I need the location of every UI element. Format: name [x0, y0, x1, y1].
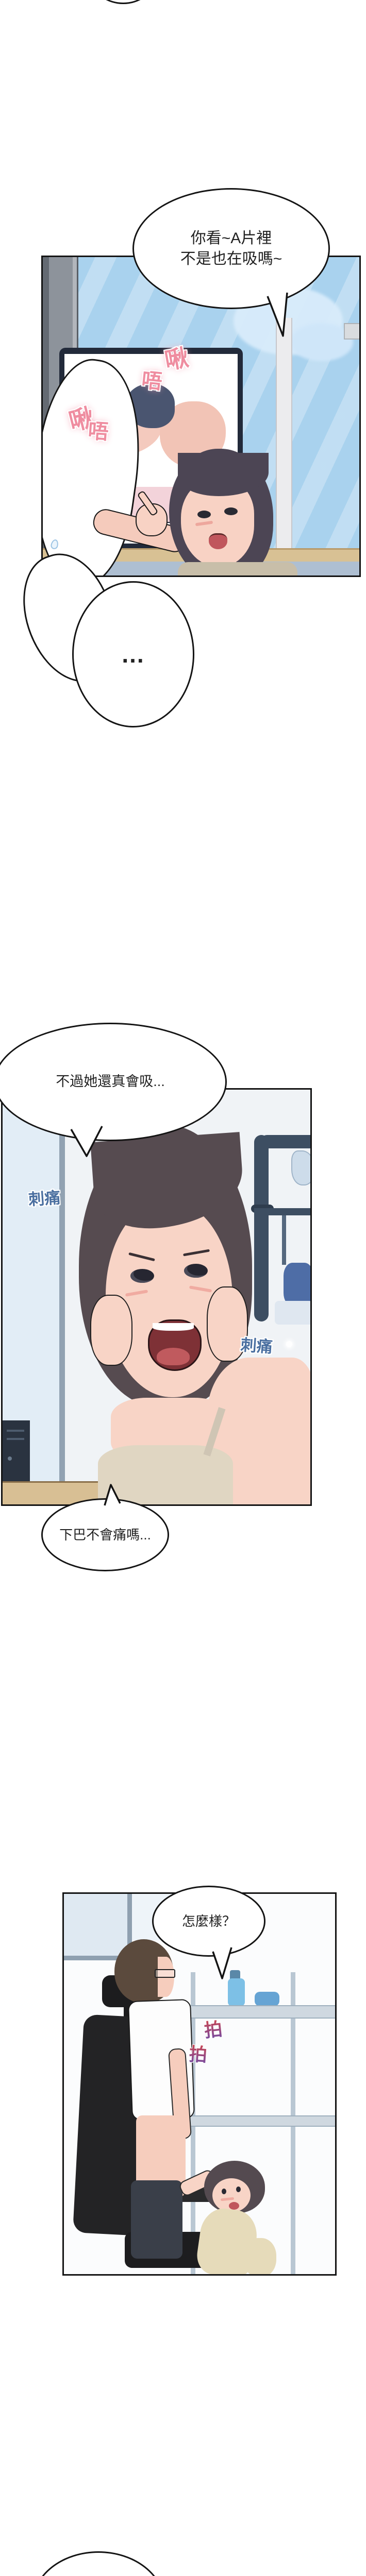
sfx-pat-1: 拍 — [203, 2014, 223, 2042]
bedding — [284, 1263, 312, 1306]
speech-bubble-2: 不過她還真會吸... — [0, 1023, 227, 1141]
sparkle — [286, 1341, 292, 1347]
bed-slat — [282, 1215, 286, 1265]
bubble-ellipsis-text: ... — [122, 639, 144, 670]
pc-slot — [7, 1438, 24, 1440]
girl1-body — [178, 562, 297, 577]
sfx-sting-right: 刺痛 — [240, 1332, 274, 1357]
bubble-1-line2: 不是也在吸嗎~ — [180, 249, 282, 269]
bubble-3-text: 下巴不會痛嗎... — [59, 1526, 151, 1544]
window-pane-tl — [64, 1894, 127, 1956]
speech-bubble-4: 怎麼樣？ — [152, 1886, 265, 1957]
wall-corner-box — [344, 323, 361, 340]
webtoon-page: 你看~A片裡 不是也在吸嗎~ — [0, 0, 366, 2576]
man-glasses — [155, 1969, 175, 1978]
speech-bubble-top-partial — [94, 0, 153, 4]
man-shorts — [131, 2180, 182, 2259]
girl3-mouth — [229, 2202, 239, 2210]
shelf-item-blue — [255, 1992, 279, 2006]
girl2-top — [98, 1445, 233, 1506]
window-frame — [59, 1090, 65, 1506]
girl2-eye-right — [184, 1264, 208, 1278]
bubble-1-line1: 你看~A片裡 — [180, 228, 282, 249]
sfx-sting-left: 刺痛 — [28, 1184, 61, 1210]
spray-bottle — [228, 1978, 245, 2006]
speech-bubble-1: 你看~A片裡 不是也在吸嗎~ — [132, 188, 330, 309]
girl1-eye-left — [197, 511, 211, 518]
panel-2: 刺痛 刺痛 — [1, 1088, 312, 1506]
mattress — [275, 1301, 312, 1325]
girl1-mouth — [209, 533, 227, 549]
girl2-eye-left — [130, 1269, 154, 1283]
rack-board-2 — [188, 2115, 337, 2127]
girl3-hip — [243, 2238, 276, 2276]
bed-post — [254, 1135, 269, 1321]
speech-bubble-3: 下巴不會痛嗎... — [41, 1498, 169, 1571]
window-column-right — [276, 318, 292, 577]
girl3-eye-2 — [236, 2187, 241, 2192]
girl2-tongue — [157, 1348, 190, 1365]
pc-slot — [7, 1430, 24, 1432]
girl2-teeth — [153, 1323, 194, 1331]
bubble-2-text: 不過她還真會吸... — [56, 1073, 165, 1091]
bed-net — [291, 1150, 312, 1185]
girl2-hand-left — [90, 1295, 132, 1366]
bed-rail-2 — [254, 1208, 312, 1215]
sfx-moan-2: 唔 — [87, 414, 110, 446]
girl2-mouth — [148, 1319, 202, 1371]
girl1-eye-right — [224, 507, 238, 515]
girl3-eye — [222, 2189, 226, 2194]
sfx-moan-1: 唔 — [140, 363, 164, 395]
speech-bubble-1-text: 你看~A片裡 不是也在吸嗎~ — [180, 228, 282, 269]
speech-bubble-5: 我剛剛幫你吸的... — [32, 2551, 165, 2576]
sfx-pat-2: 拍 — [188, 2040, 208, 2067]
pc-power-led — [8, 1456, 12, 1461]
speech-bubble-ellipsis: ... — [72, 581, 194, 727]
bubble-4-text: 怎麼樣？ — [182, 1912, 236, 1930]
